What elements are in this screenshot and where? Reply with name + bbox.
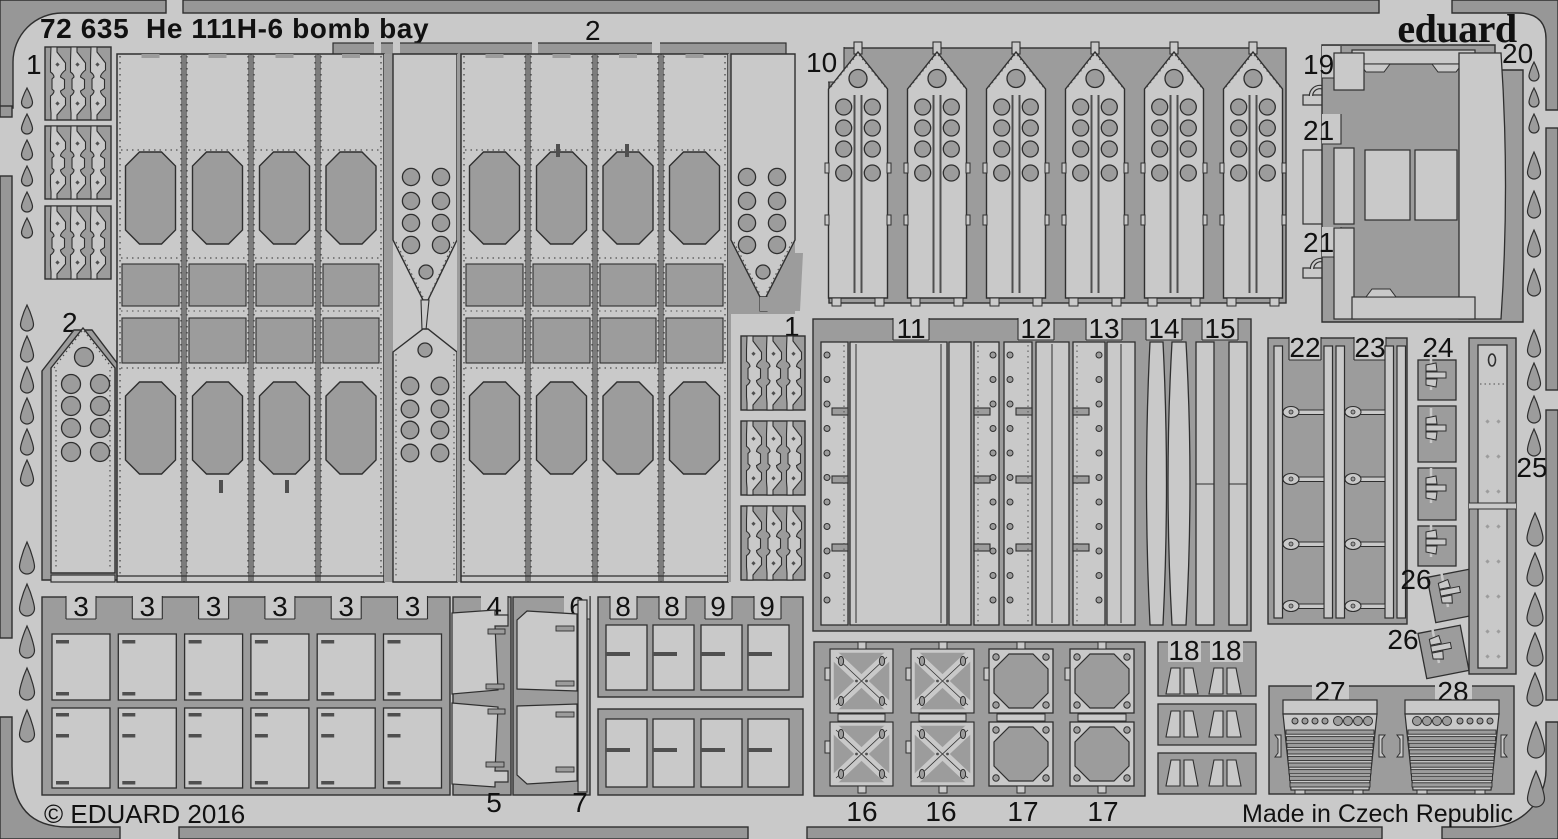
- svg-text:9: 9: [710, 591, 726, 622]
- svg-text:26: 26: [1400, 564, 1431, 595]
- svg-text:3: 3: [272, 591, 288, 622]
- svg-text:24: 24: [1422, 332, 1453, 363]
- svg-text:22: 22: [1289, 332, 1320, 363]
- svg-text:25: 25: [1516, 452, 1547, 483]
- svg-text:13: 13: [1088, 313, 1119, 344]
- svg-text:21: 21: [1303, 227, 1334, 258]
- svg-text:18: 18: [1210, 635, 1241, 666]
- svg-text:3: 3: [206, 591, 222, 622]
- svg-text:17: 17: [1087, 796, 1118, 827]
- svg-text:12: 12: [1020, 313, 1051, 344]
- svg-text:15: 15: [1204, 313, 1235, 344]
- svg-text:14: 14: [1148, 313, 1179, 344]
- svg-text:3: 3: [405, 591, 421, 622]
- svg-text:19: 19: [1303, 49, 1334, 80]
- svg-text:23: 23: [1354, 332, 1385, 363]
- svg-text:20: 20: [1502, 38, 1533, 69]
- svg-text:9: 9: [759, 591, 775, 622]
- svg-text:26: 26: [1387, 624, 1418, 655]
- svg-text:3: 3: [338, 591, 354, 622]
- svg-text:8: 8: [615, 591, 631, 622]
- svg-text:3: 3: [140, 591, 156, 622]
- svg-text:2: 2: [585, 15, 601, 46]
- svg-text:1: 1: [26, 49, 42, 80]
- svg-text:8: 8: [664, 591, 680, 622]
- svg-text:10: 10: [806, 47, 837, 78]
- svg-text:5: 5: [486, 787, 502, 818]
- svg-text:17: 17: [1007, 796, 1038, 827]
- svg-text:72 635 He 111H-6 bomb bay: 72 635 He 111H-6 bomb bay: [40, 13, 429, 44]
- svg-text:Made in Czech Republic: Made in Czech Republic: [1242, 800, 1513, 828]
- svg-text:18: 18: [1168, 635, 1199, 666]
- svg-text:16: 16: [846, 796, 877, 827]
- svg-text:11: 11: [896, 313, 925, 344]
- svg-text:16: 16: [925, 796, 956, 827]
- svg-text:3: 3: [73, 591, 89, 622]
- svg-text:21: 21: [1303, 115, 1334, 146]
- svg-text:© EDUARD 2016: © EDUARD 2016: [44, 799, 245, 829]
- svg-text:eduard: eduard: [1397, 6, 1517, 51]
